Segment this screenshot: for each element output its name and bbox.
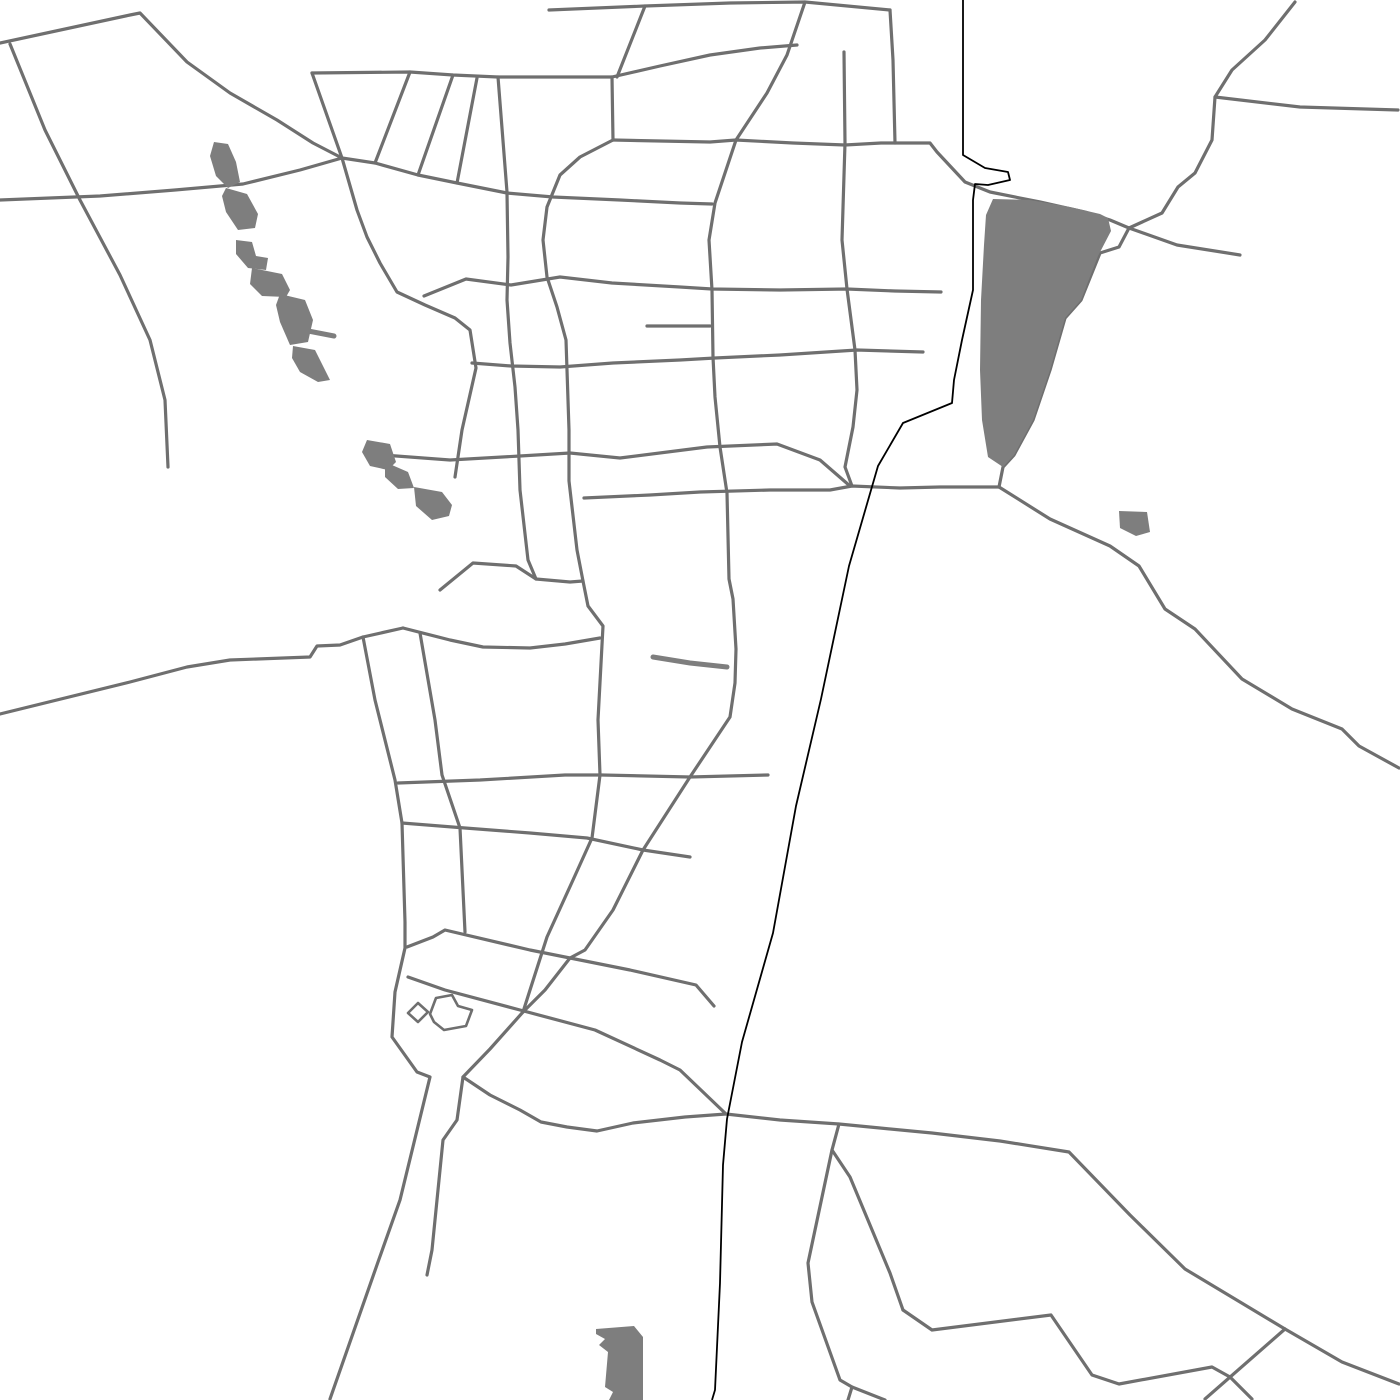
road-road-y835	[402, 823, 643, 850]
road-diag-d	[457, 78, 477, 183]
water-pond-chain-1	[210, 142, 240, 188]
road-conn-612	[612, 77, 613, 140]
road-left-steep	[10, 44, 168, 467]
water-pond-chain-3	[236, 240, 268, 270]
road-vert-b1	[842, 52, 857, 486]
road-road-y640	[403, 628, 600, 648]
water-pond-small	[1119, 511, 1150, 536]
road-block-bottom	[342, 158, 712, 204]
water-pond-chain-9	[414, 487, 452, 520]
road-y-left-fork	[852, 1387, 885, 1400]
buildings-layer	[408, 995, 472, 1030]
road-nw-curve	[0, 13, 342, 158]
road-road-y777	[398, 775, 768, 783]
road-diag-a	[617, 6, 645, 77]
road-lake-ne	[1129, 2, 1295, 228]
road-pocket-se-link	[463, 1077, 726, 1131]
water-pond-chain-8	[385, 462, 414, 489]
water-reservoir	[980, 199, 1111, 467]
road-spoon	[440, 563, 583, 590]
building-diamond	[408, 1003, 428, 1022]
water-pond-chain-4	[250, 268, 290, 297]
road-vert-b2	[890, 10, 895, 143]
road-ns-main	[427, 2, 805, 1275]
road-road-y287	[424, 277, 941, 296]
map-canvas	[0, 0, 1400, 1400]
road-elbow-east	[1215, 97, 1398, 110]
road-sw-diagonal	[0, 628, 403, 714]
road-se-long	[999, 487, 1399, 768]
road-x-branch	[1129, 228, 1240, 255]
building-cluster	[430, 995, 472, 1030]
road-diag-b	[375, 72, 410, 163]
stream-dash	[653, 657, 727, 667]
road-zigzag-south	[903, 1310, 1252, 1399]
water-pond-chain-5	[276, 294, 313, 345]
road-y-left	[808, 1150, 852, 1400]
street-map	[0, 0, 1400, 1400]
road-vert-510	[507, 193, 536, 579]
road-block-top	[312, 45, 797, 77]
road-main-se	[408, 977, 1399, 1384]
road-curve-branch	[1205, 1329, 1285, 1399]
water-layer	[210, 142, 1150, 1400]
road-road-y490	[584, 486, 999, 498]
roads-layer	[0, 2, 1399, 1400]
railway-layer	[712, 0, 1010, 1400]
water-pond-chain-6	[292, 346, 330, 382]
road-diag-c	[418, 75, 453, 175]
water-pond-chain-2	[222, 188, 258, 230]
road-stub-y855	[643, 850, 690, 857]
road-diag-e	[498, 77, 507, 192]
railway-line	[712, 0, 1010, 1400]
water-area-south	[596, 1326, 643, 1400]
road-nw-curve-ext	[342, 158, 476, 477]
road-road-y450	[383, 444, 850, 486]
road-top-edge	[549, 2, 890, 10]
road-y-road	[832, 1124, 903, 1310]
road-west-horizontal	[0, 158, 342, 200]
road-ns-second	[523, 140, 613, 1012]
